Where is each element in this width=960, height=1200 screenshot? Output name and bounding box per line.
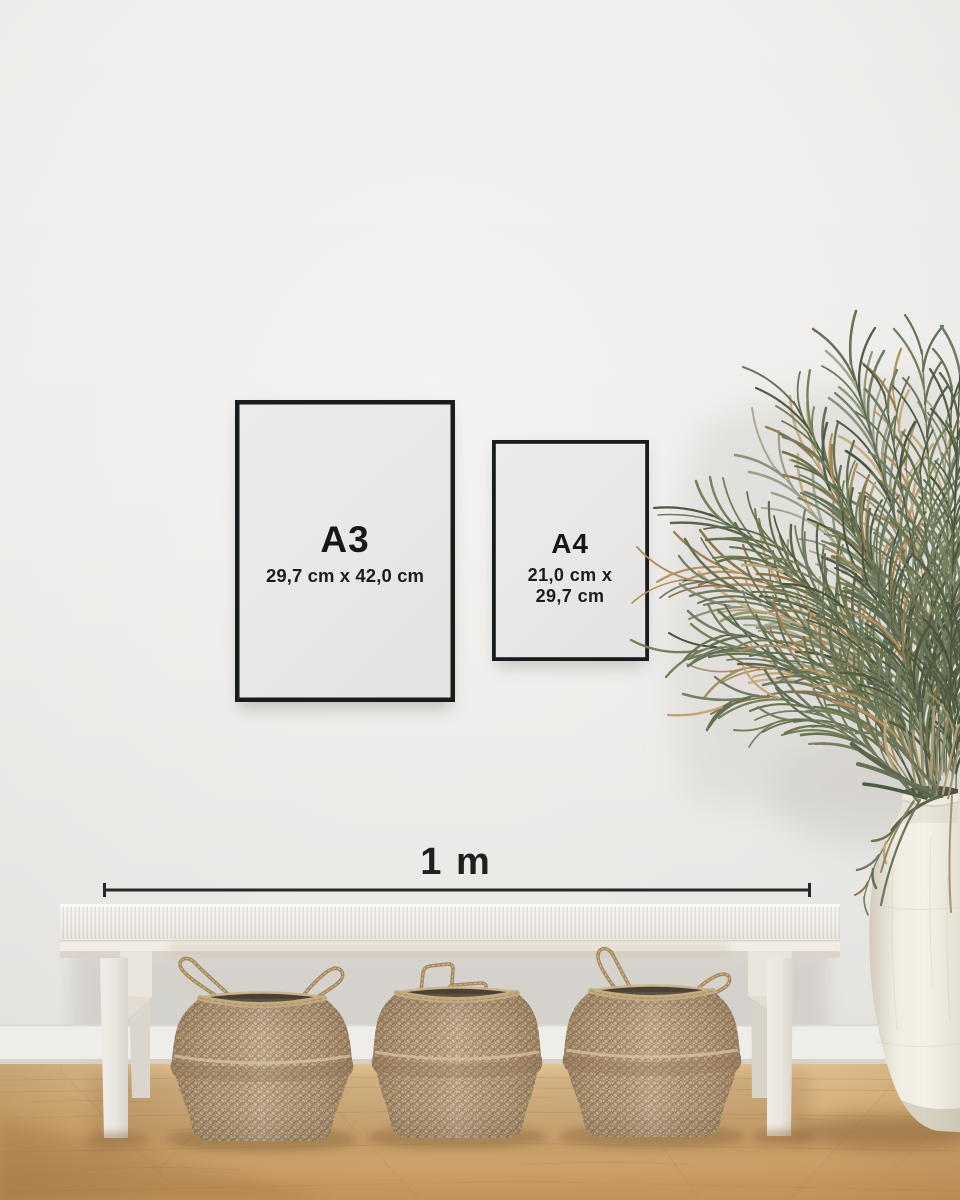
svg-text:29,7 cm: 29,7 cm <box>536 586 605 606</box>
svg-text:1 m: 1 m <box>420 841 491 883</box>
svg-text:29,7 cm x 42,0 cm: 29,7 cm x 42,0 cm <box>266 565 424 586</box>
svg-text:A3: A3 <box>320 519 369 560</box>
svg-text:A4: A4 <box>551 528 588 559</box>
svg-text:21,0 cm x: 21,0 cm x <box>528 565 613 585</box>
